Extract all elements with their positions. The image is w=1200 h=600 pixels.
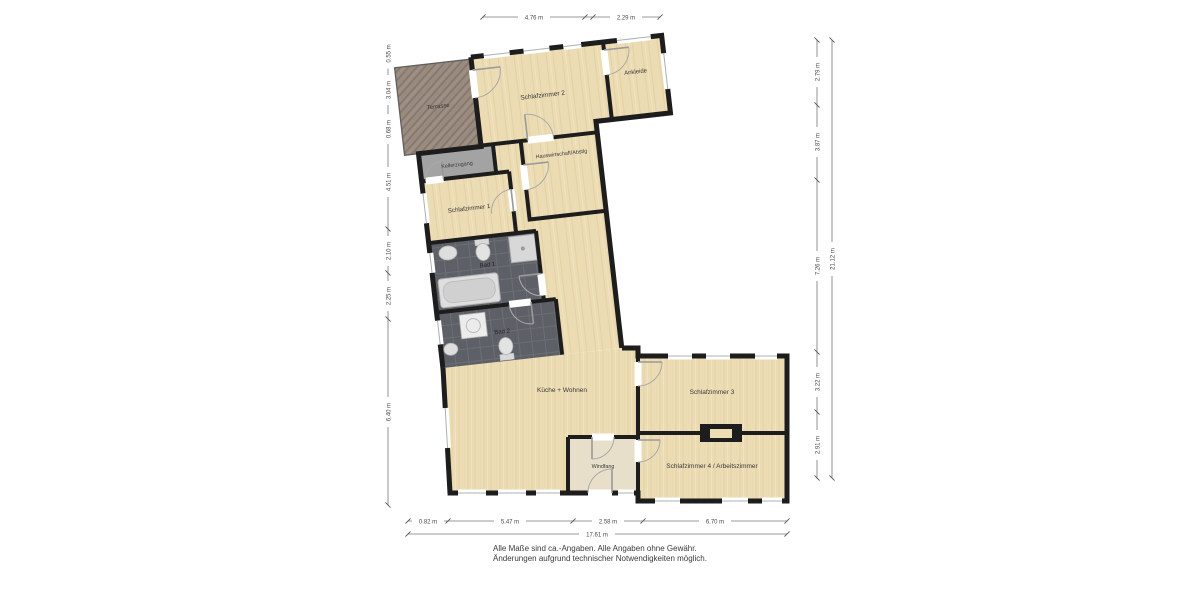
floor-plan-drawing: Terrasse Schlafzimmer 2 Ankleide Kellerz… — [0, 0, 1200, 600]
dim-left-1: 0.55 m — [386, 44, 392, 62]
lower-wing: Küche + Wohnen Windfang Schlafzimmer 3 S… — [443, 348, 787, 501]
dim-right-1: 2.79 m — [815, 63, 821, 81]
dim-right-total: 21.12 m — [830, 248, 836, 270]
dim-left-7: 6.40 m — [386, 403, 392, 421]
window — [484, 53, 510, 56]
dim-left-4: 4.51 m — [386, 173, 392, 191]
window — [437, 321, 440, 345]
dim-bottom-3: 2.58 m — [599, 519, 617, 525]
label-kueche: Küche + Wohnen — [537, 387, 587, 394]
window — [664, 53, 668, 89]
window — [524, 48, 550, 51]
window — [430, 253, 432, 273]
dim-left-3: 0.68 m — [386, 120, 392, 138]
dim-left-6: 2.25 m — [386, 287, 392, 305]
chimney-flue — [710, 429, 732, 438]
dim-bottom-4: 6.70 m — [706, 519, 724, 525]
dimensions-top: 4.76 m 2.29 m — [481, 13, 663, 22]
dimensions-bottom: 0.82 m 5.47 m 2.58 m 6.70 m 17.61 m — [406, 517, 790, 539]
dim-top-1: 4.76 m — [525, 15, 543, 21]
label-schlafzimmer3: Schlafzimmer 3 — [690, 389, 735, 396]
dimensions-right: 2.79 m 3.87 m 7.26 m 3.22 m 2.91 m 21.12… — [813, 38, 837, 481]
label-schlafzimmer4: Schlafzimmer 4 / Arbeitszimmer — [666, 463, 758, 470]
window — [423, 193, 426, 223]
floor-plan-page: Terrasse Schlafzimmer 2 Ankleide Kellerz… — [0, 0, 1200, 600]
window — [617, 37, 651, 41]
dimensions-left: 0.55 m 3.04 m 0.68 m 4.51 m 2.10 m 2.25 … — [384, 39, 393, 508]
label-windfang: Windfang — [592, 464, 615, 470]
dim-top-2: 2.29 m — [617, 15, 635, 21]
dim-right-5: 2.91 m — [815, 436, 821, 454]
dim-bottom-1: 0.82 m — [419, 519, 437, 525]
disclaimer: Alle Maße sind ca.-Angaben. Alle Angaben… — [493, 544, 707, 563]
window — [563, 45, 581, 47]
dim-bottom-2: 5.47 m — [501, 519, 519, 525]
dim-left-5: 2.10 m — [386, 242, 392, 260]
window — [445, 408, 447, 448]
washing-machine — [459, 312, 488, 339]
disclaimer-line-1: Alle Maße sind ca.-Angaben. Alle Angaben… — [493, 544, 697, 553]
dim-bottom-total: 17.61 m — [586, 532, 608, 538]
dim-left-2: 3.04 m — [386, 81, 392, 99]
disclaimer-line-2: Änderungen aufgrund technischer Notwendi… — [493, 554, 707, 563]
dim-right-4: 3.22 m — [815, 373, 821, 391]
dim-right-3: 7.26 m — [815, 257, 821, 275]
dim-right-2: 3.87 m — [815, 133, 821, 151]
